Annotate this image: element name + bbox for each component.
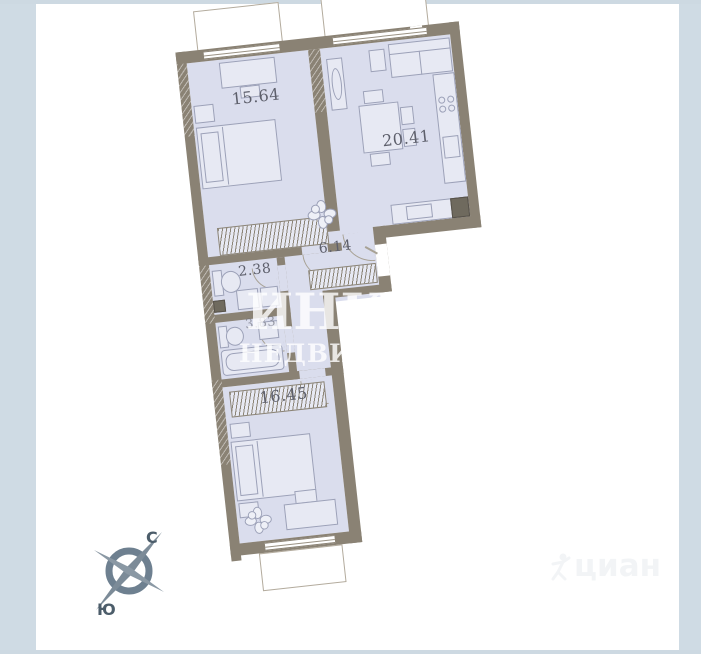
- watermark-inkom: ИНК М: [246, 283, 505, 341]
- plant-hall-icon: [304, 197, 339, 232]
- kitchen-sink-bottom: [406, 203, 433, 220]
- watermark-cian-text: циан: [574, 551, 661, 582]
- dining-chair-top: [363, 89, 384, 104]
- watermark-inkom-logo-icon: [389, 283, 447, 341]
- watermark-person-icon: [550, 552, 572, 582]
- floorplan-image: 15.64 20.41 2.38 6.14 3.83 16.45 ИНК М Н…: [0, 0, 701, 654]
- plant-bedroom2-icon: [242, 504, 275, 537]
- frame-strip-right: [679, 4, 701, 650]
- dining-chair-right1: [400, 106, 415, 125]
- vent-wc: [213, 300, 226, 313]
- nightstand-bedroom1: [193, 104, 215, 124]
- watermark-inkom-part1: ИНК: [246, 287, 386, 337]
- vent-shaft: [450, 196, 470, 218]
- watermark-inkom-part2: М: [450, 287, 505, 337]
- frame-strip-left: [0, 4, 36, 650]
- compass-south-label: Ю: [97, 600, 116, 619]
- side-table-living: [368, 49, 386, 73]
- watermark-cian: циан: [550, 551, 661, 582]
- dining-chair-bottom: [370, 152, 391, 167]
- frame-strip-bottom: [0, 650, 701, 654]
- nightstand1-bedroom2: [229, 422, 251, 439]
- watermark-inkom-line2: НЕДВИЖИМОСТЬ: [239, 339, 473, 368]
- door-gap-entry: [375, 244, 390, 277]
- kitchen-sink-right: [442, 135, 460, 159]
- compass-north-label: С: [146, 528, 158, 547]
